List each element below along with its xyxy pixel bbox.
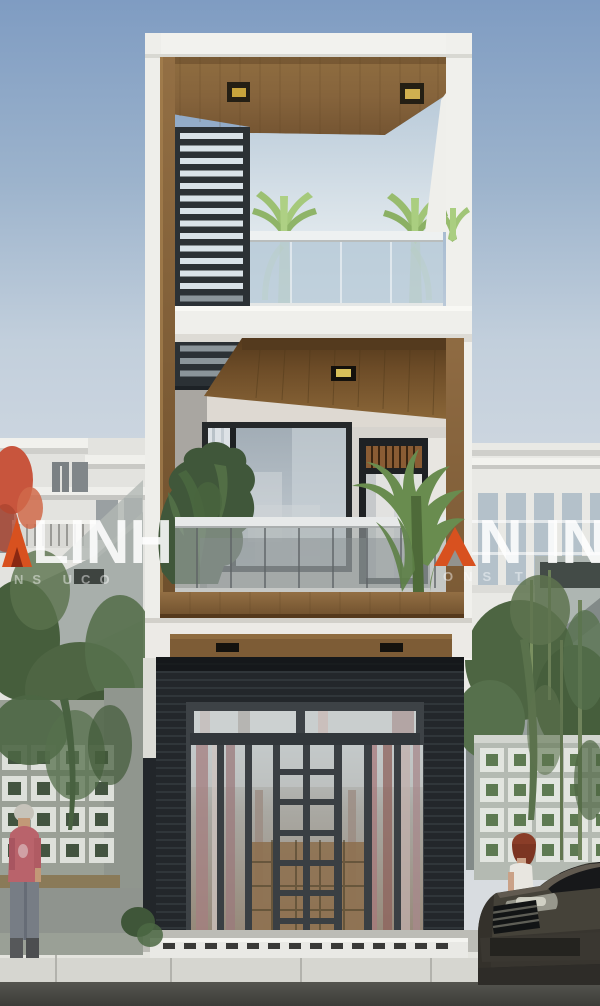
- svg-text:ONS T: ONS T: [443, 569, 533, 584]
- svg-text:N: N: [478, 508, 523, 577]
- svg-text:IN: IN: [544, 508, 600, 577]
- svg-text:NS UCO: NS UCO: [14, 572, 119, 587]
- svg-text:LINH: LINH: [32, 508, 173, 577]
